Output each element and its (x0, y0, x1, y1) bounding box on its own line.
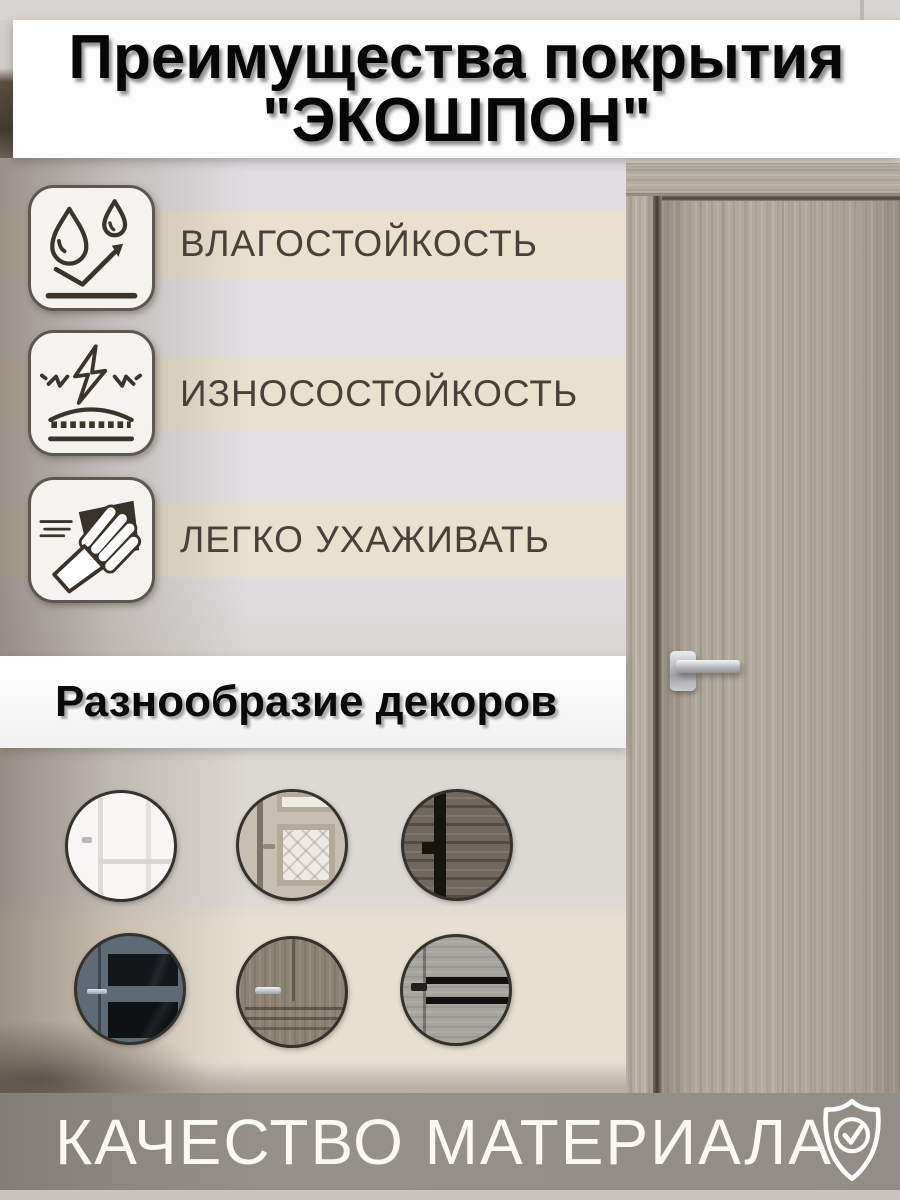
door-handle (422, 842, 434, 854)
footer-quality-label: КАЧЕСТВО МАТЕРИАЛА (0, 1105, 833, 1179)
door-stile-line (98, 793, 103, 902)
door-frame-shadow-line (860, 0, 864, 20)
door-edge-bar (434, 792, 446, 901)
door-glass-stripe (426, 977, 512, 984)
door-glass-stripe (426, 997, 512, 1004)
door-handle (411, 983, 427, 991)
door-rail-line (98, 859, 177, 864)
door-handle (263, 844, 275, 849)
decor-heading-band: Разнообразие декоров (0, 656, 626, 748)
wall-background-top (0, 0, 900, 20)
title-band: Преимущества покрытия "ЭКОШПОН" (13, 20, 900, 158)
door-handle (87, 989, 107, 994)
door-leaf (662, 163, 900, 1193)
feature-wear-resistance: ИЗНОСОСТОЙКОСТЬ (180, 357, 578, 430)
door-photo (626, 158, 900, 1193)
page-title-line1: Преимущества покрытия (68, 26, 844, 89)
white-classic-door (65, 790, 177, 902)
feature-easy-care: ЛЕГКО УХАЖИВАТЬ (180, 503, 550, 577)
ecoveneer-advantages-banner: Преимущества покрытия "ЭКОШПОН" (0, 0, 900, 1200)
water-drops-icon (28, 185, 155, 311)
page-title-line2: "ЭКОШПОН" (262, 89, 651, 152)
door-rail-line (241, 1027, 348, 1030)
light-door-with-glass-insert (236, 789, 348, 901)
light-gray-door-with-black-stripes (400, 934, 512, 1046)
door-handle (255, 987, 281, 994)
decor-heading: Разнообразие декоров (0, 677, 557, 727)
door-leaf-seam (782, 201, 784, 1193)
impact-resistance-icon (28, 330, 155, 456)
door-top-gap-line (662, 196, 900, 201)
door-glass-insert (277, 824, 335, 886)
door-gap-line (653, 163, 662, 1193)
blue-gray-door-with-dark-glass (74, 933, 186, 1045)
door-panel-seam (292, 939, 295, 1001)
door-glass-top (108, 954, 178, 986)
shield-check-icon (820, 1097, 884, 1183)
gray-wood-classic-door (236, 936, 348, 1048)
door-glass-bottom (108, 1002, 178, 1038)
footer-band: КАЧЕСТВО МАТЕРИАЛА (0, 1093, 900, 1190)
door-stile-line (146, 793, 151, 902)
door-rail-line (243, 1017, 347, 1020)
door-handle (82, 837, 92, 843)
wiping-hand-icon (28, 477, 155, 603)
photo-left-edge (0, 20, 14, 158)
door-rail-line (245, 1007, 345, 1010)
dark-rustic-wood-door (401, 789, 513, 901)
door-edge (423, 937, 426, 1046)
feature-moisture-resistance: ВЛАГОСТОЙКОСТЬ (180, 210, 538, 278)
door-frame-left (626, 163, 653, 1193)
floor-strip (0, 1190, 900, 1200)
door-handle (676, 660, 740, 673)
door-glass-top (277, 792, 335, 812)
door-frame-top (626, 163, 900, 196)
